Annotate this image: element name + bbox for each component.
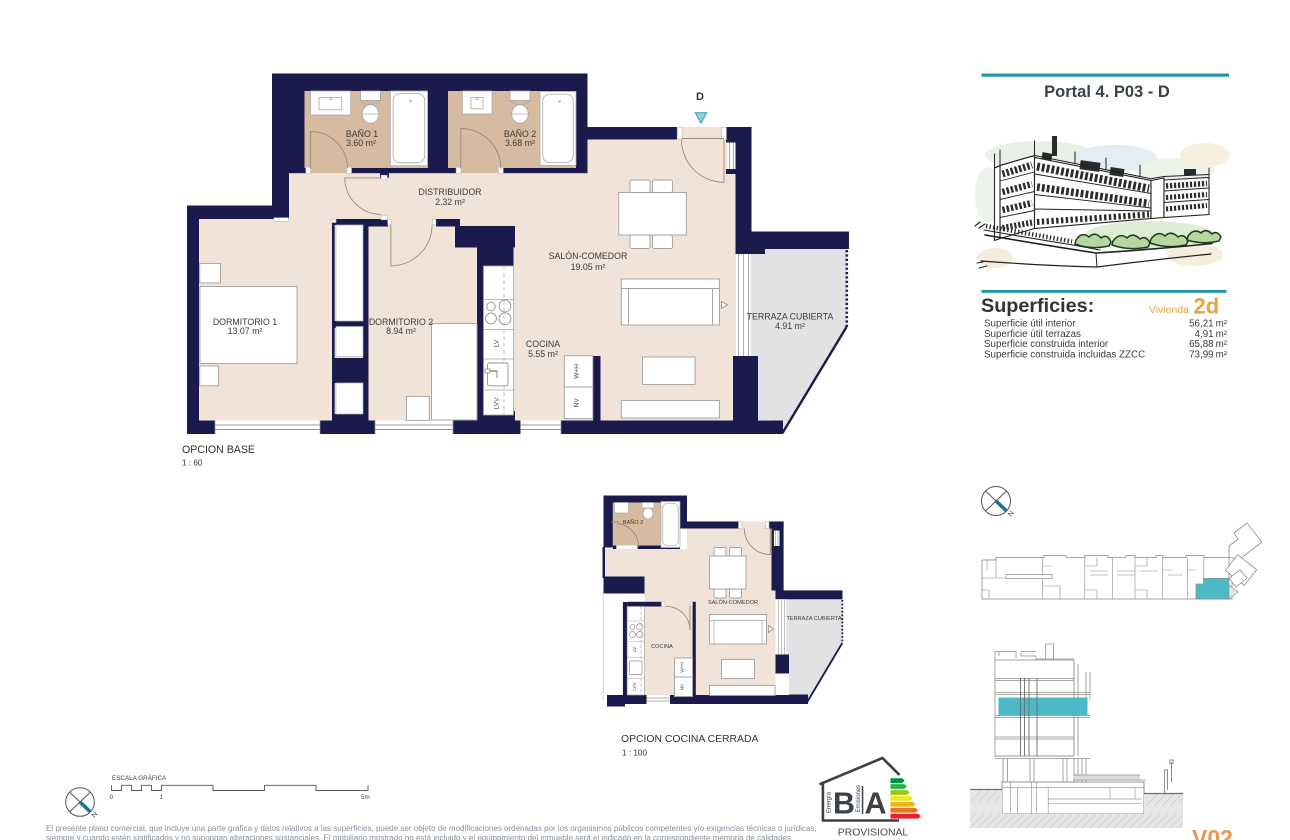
svg-text:1 : 60: 1 : 60: [182, 459, 203, 468]
svg-text:OPCION BASE: OPCION BASE: [182, 444, 255, 456]
svg-text:Emisiones: Emisiones: [856, 785, 862, 813]
svg-text:NV: NV: [574, 398, 581, 408]
svg-text:V02: V02: [1192, 825, 1233, 840]
svg-text:SALÓN-COMEDOR: SALÓN-COMEDOR: [549, 251, 628, 261]
svg-text:COCINA: COCINA: [526, 339, 560, 349]
svg-text:73,99 m²: 73,99 m²: [1189, 350, 1228, 361]
svg-text:Superficie construida incluida: Superficie construida incluidas ZZCC: [984, 350, 1145, 361]
svg-text:COCINA: COCINA: [651, 644, 673, 650]
svg-text:2d: 2d: [1194, 294, 1220, 319]
svg-text:2.32 m²: 2.32 m²: [435, 197, 465, 207]
svg-text:Superficie construida interior: Superficie construida interior: [984, 339, 1109, 350]
svg-text:D: D: [696, 91, 704, 103]
svg-text:TERRAZA CUBIERTA: TERRAZA CUBIERTA: [747, 312, 834, 322]
svg-text:LVV: LVV: [494, 397, 501, 410]
svg-text:ESCALA GRÁFICA: ESCALA GRÁFICA: [112, 773, 167, 782]
svg-text:65,88 m²: 65,88 m²: [1189, 339, 1228, 350]
svg-text:56,21 m²: 56,21 m²: [1189, 319, 1228, 330]
svg-text:Superficies:: Superficies:: [981, 295, 1094, 317]
svg-text:W+H: W+H: [574, 364, 581, 379]
svg-text:A: A: [865, 787, 887, 821]
svg-text:1 : 100: 1 : 100: [622, 749, 647, 758]
svg-text:Superficie útil interior: Superficie útil interior: [984, 319, 1076, 330]
svg-text:TERRAZA CUBIERTA: TERRAZA CUBIERTA: [786, 616, 841, 622]
svg-text:5m: 5m: [361, 794, 370, 801]
svg-text:B: B: [833, 787, 855, 821]
svg-text:Energía: Energía: [827, 791, 833, 813]
svg-text:5.55 m²: 5.55 m²: [528, 349, 558, 359]
svg-text:PROVISIONAL: PROVISIONAL: [838, 828, 909, 839]
svg-text:Portal 4. P03 - D: Portal 4. P03 - D: [1044, 83, 1170, 101]
svg-text:LVV: LVV: [632, 681, 637, 690]
svg-text:8.94 m²: 8.94 m²: [386, 326, 416, 336]
svg-text:siempre y cuando estén justifi: siempre y cuando estén justificados y no…: [46, 834, 791, 840]
svg-text:4.91 m²: 4.91 m²: [775, 321, 805, 331]
svg-text:SALÓN-COMEDOR: SALÓN-COMEDOR: [708, 599, 758, 606]
svg-text:BAÑO 2: BAÑO 2: [623, 519, 644, 526]
svg-text:Vivienda: Vivienda: [1149, 304, 1189, 316]
svg-text:13.07 m²: 13.07 m²: [228, 326, 263, 336]
svg-text:NV: NV: [680, 683, 685, 690]
svg-text:OPCION COCINA CERRADA: OPCION COCINA CERRADA: [621, 734, 758, 745]
svg-text:N: N: [1007, 510, 1016, 518]
svg-text:0: 0: [110, 794, 114, 801]
svg-text:N: N: [91, 811, 100, 819]
svg-text:LV: LV: [494, 339, 501, 347]
svg-text:El presente plano comercial, q: El presente plano comercial, que incluye…: [46, 824, 817, 833]
svg-text:DISTRIBUIDOR: DISTRIBUIDOR: [418, 187, 481, 197]
svg-text:19.05 m²: 19.05 m²: [571, 262, 606, 272]
svg-text:1: 1: [160, 794, 164, 801]
svg-text:3.60 m²: 3.60 m²: [346, 138, 376, 148]
svg-text:W+H: W+H: [680, 662, 685, 672]
svg-text:3.68 m²: 3.68 m²: [505, 138, 535, 148]
